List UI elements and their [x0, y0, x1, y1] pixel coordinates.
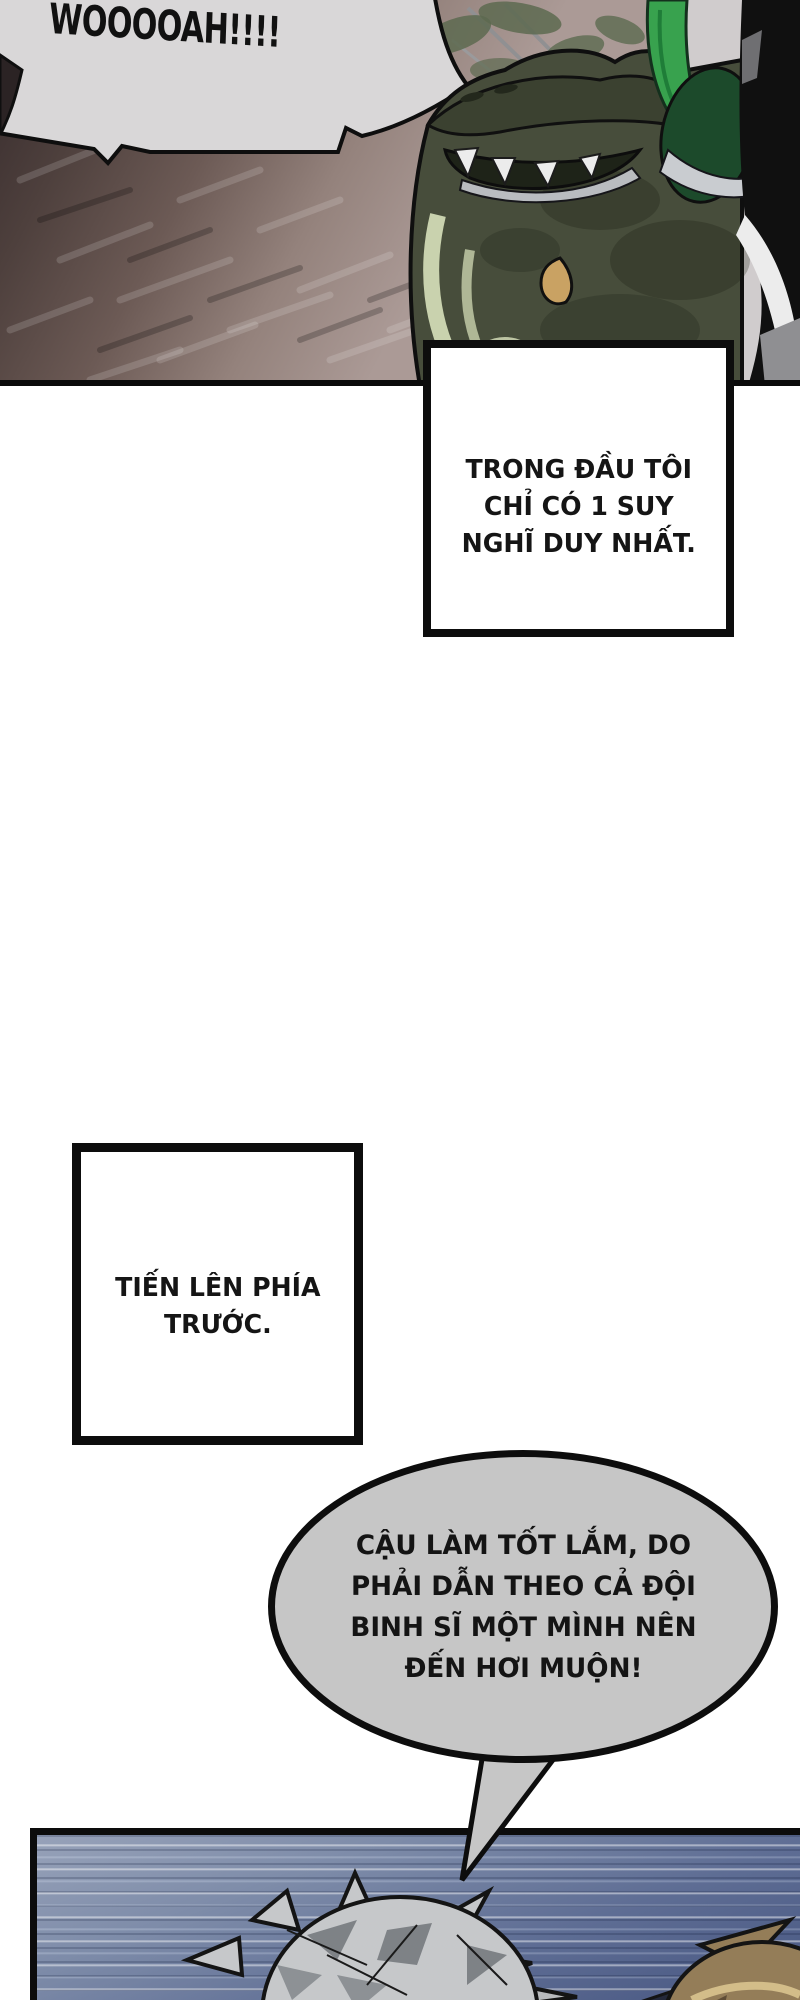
narration-box-1: TRONG ĐẦU TÔI CHỈ CÓ 1 SUY NGHĨ DUY NHẤT…	[423, 340, 734, 637]
dialogue-text: CẬU LÀM TỐT LẮM, DO PHẢI DẪN THEO CẢ ĐỘI…	[350, 1525, 696, 1689]
armored-silhouette	[736, 0, 800, 386]
panel-top: WOOOOAH!!!!	[0, 0, 800, 386]
narration-line: TRONG ĐẦU TÔI	[461, 452, 695, 489]
dialogue-line: CẬU LÀM TỐT LẮM, DO	[350, 1525, 696, 1566]
narration-line: TIẾN LÊN PHÍA	[115, 1270, 320, 1307]
narration-line: NGHĨ DUY NHẤT.	[461, 526, 695, 563]
narration-box-2: TIẾN LÊN PHÍA TRƯỚC.	[72, 1143, 363, 1445]
narration-line: CHỈ CÓ 1 SUY	[461, 489, 695, 526]
panel-bottom-art	[37, 1835, 800, 2000]
dialogue-line: ĐẾN HƠI MUỘN!	[350, 1648, 696, 1689]
comic-page: WOOOOAH!!!! TRONG ĐẦU TÔI CHỈ CÓ 1 SUY N…	[0, 0, 800, 2000]
dialogue-bubble: CẬU LÀM TỐT LẮM, DO PHẢI DẪN THEO CẢ ĐỘI…	[268, 1450, 778, 1763]
panel-top-art	[0, 0, 800, 386]
panel-bottom	[30, 1828, 800, 2000]
silver-hair-character	[187, 1873, 577, 2000]
dialogue-line: BINH SĨ MỘT MÌNH NÊN	[350, 1607, 696, 1648]
narration-line: TRƯỚC.	[115, 1307, 320, 1344]
dialogue-line: PHẢI DẪN THEO CẢ ĐỘI	[350, 1566, 696, 1607]
narration-text-2: TIẾN LÊN PHÍA TRƯỚC.	[115, 1270, 320, 1344]
brown-hair-character	[637, 1920, 800, 2000]
narration-text-1: TRONG ĐẦU TÔI CHỈ CÓ 1 SUY NGHĨ DUY NHẤT…	[461, 452, 695, 563]
